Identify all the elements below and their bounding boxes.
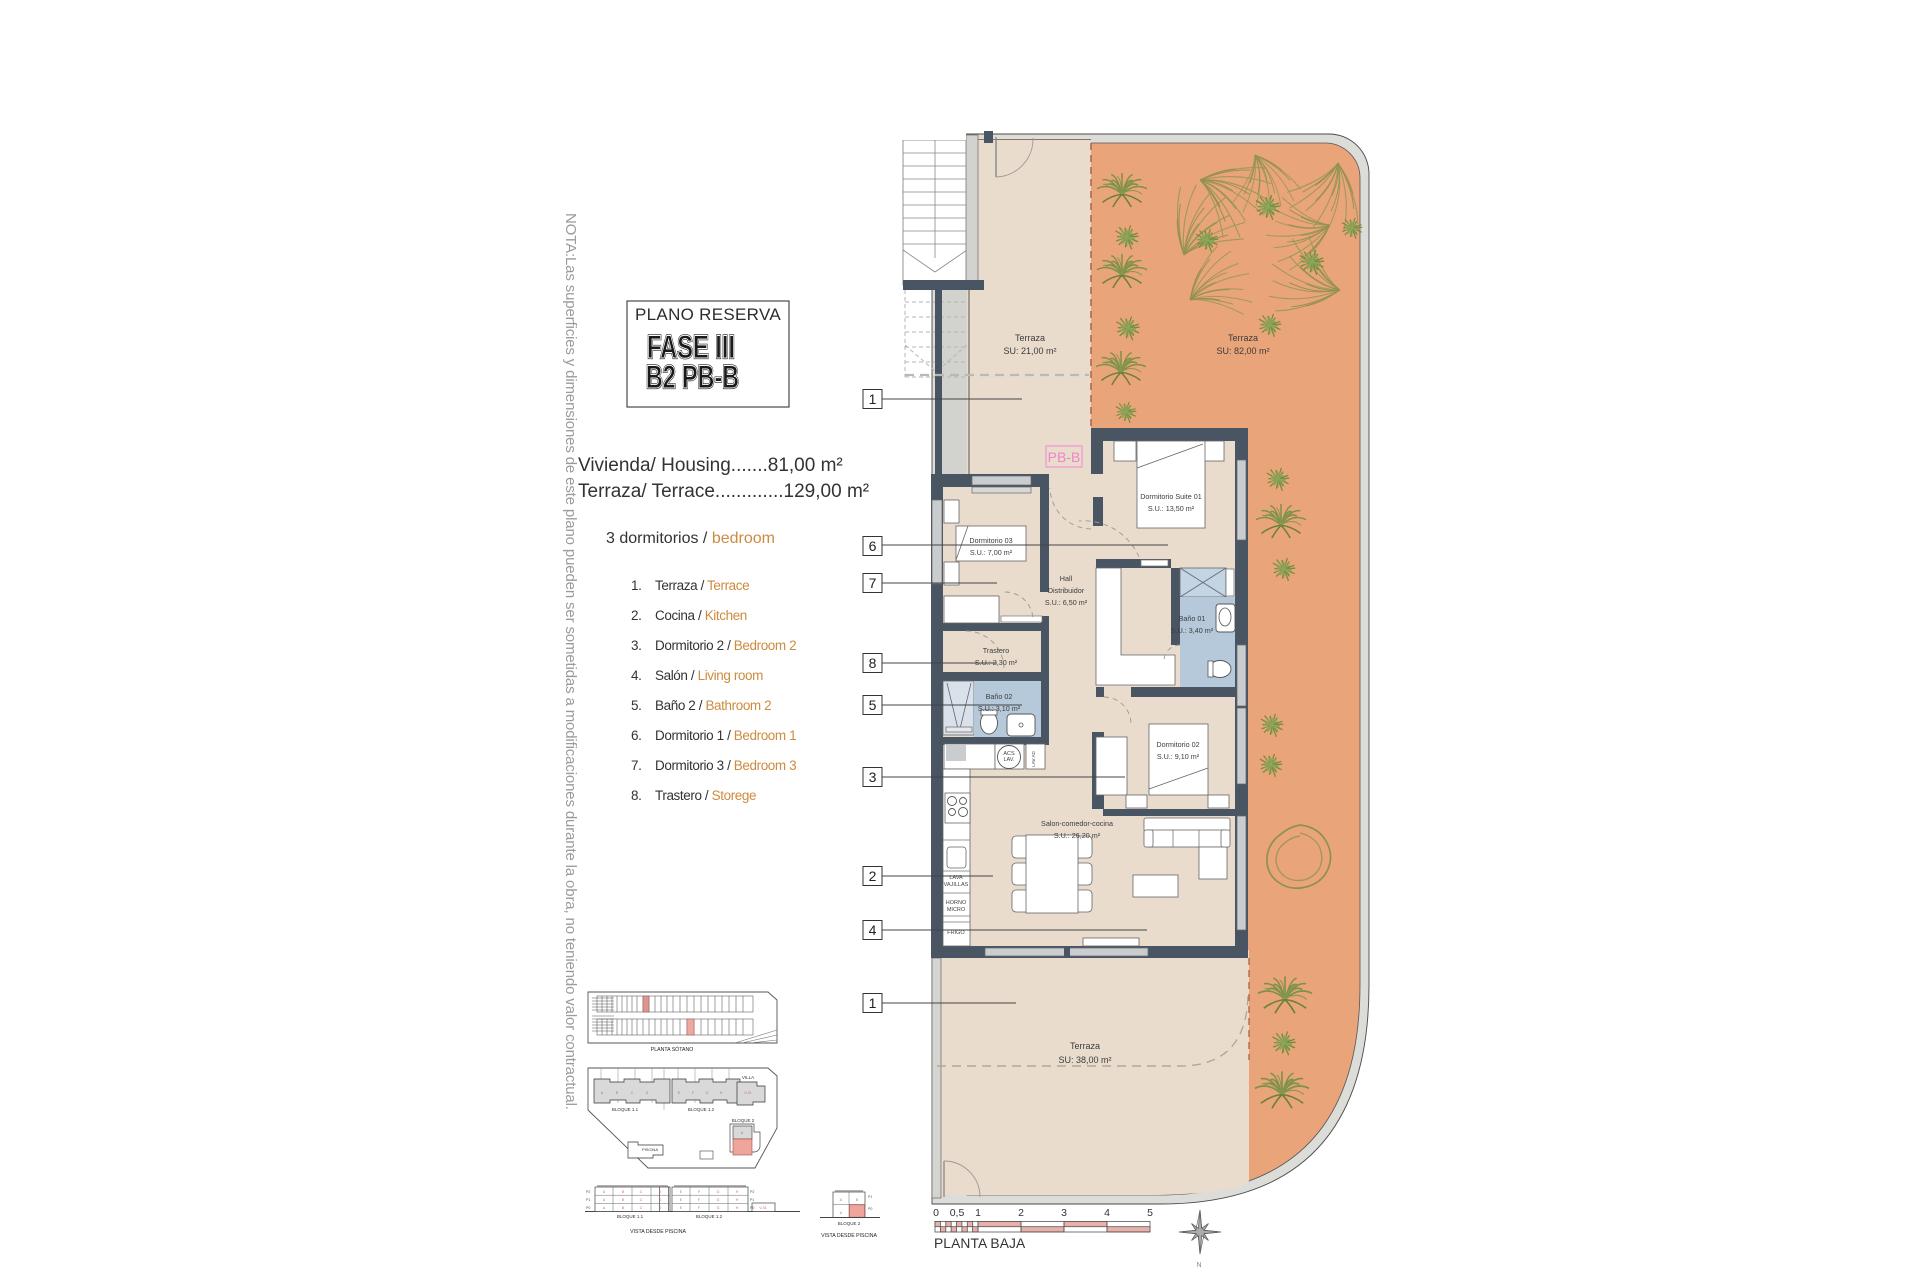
svg-text:PB-B: PB-B: [1048, 449, 1081, 465]
svg-text:0,5: 0,5: [950, 1207, 965, 1219]
svg-text:6.: 6.: [631, 728, 641, 743]
svg-text:C: C: [640, 1198, 643, 1202]
svg-text:VILLA: VILLA: [742, 1075, 754, 1080]
svg-text:S.U.: 7,00 m²: S.U.: 7,00 m²: [970, 548, 1013, 557]
svg-text:1: 1: [869, 995, 877, 1011]
svg-text:HORNO: HORNO: [946, 900, 967, 906]
svg-text:BLOQUE 1.1: BLOQUE 1.1: [612, 1107, 639, 1112]
svg-text:Dormitorio Suite 01: Dormitorio Suite 01: [1140, 492, 1202, 501]
svg-text:LAV.: LAV.: [1003, 757, 1014, 763]
svg-text:G: G: [706, 1091, 709, 1095]
svg-text:Baño 2 / Bathroom 2: Baño 2 / Bathroom 2: [655, 698, 771, 713]
svg-text:D: D: [646, 1091, 649, 1095]
svg-text:Dormitorio 3 / Bedroom 3: Dormitorio 3 / Bedroom 3: [655, 758, 796, 773]
svg-text:5.: 5.: [631, 698, 641, 713]
svg-text:5: 5: [869, 697, 877, 713]
svg-text:SU: 82,00 m²: SU: 82,00 m²: [1216, 346, 1269, 356]
svg-text:3: 3: [869, 769, 877, 785]
svg-text:S.U.: 13,50 m²: S.U.: 13,50 m²: [1148, 504, 1195, 513]
svg-text:1: 1: [869, 391, 877, 407]
svg-text:Cocina / Kitchen: Cocina / Kitchen: [655, 608, 747, 623]
svg-text:2.: 2.: [631, 608, 641, 623]
svg-text:S.U.: 6,50 m²: S.U.: 6,50 m²: [1045, 598, 1088, 607]
svg-text:3: 3: [1061, 1207, 1067, 1219]
svg-text:4: 4: [869, 922, 877, 938]
svg-text:V-01: V-01: [744, 1091, 751, 1095]
svg-text:Vivienda/ Housing.......81,00: Vivienda/ Housing.......81,00 m²: [578, 455, 843, 476]
svg-text:Terraza / Terrace: Terraza / Terrace: [655, 578, 749, 593]
svg-text:BLOQUE 1.2: BLOQUE 1.2: [688, 1107, 715, 1112]
svg-text:Dormitorio 02: Dormitorio 02: [1156, 740, 1199, 749]
svg-text:1: 1: [975, 1207, 981, 1219]
svg-text:P2: P2: [750, 1190, 754, 1194]
svg-text:Trastero / Storege: Trastero / Storege: [655, 788, 756, 803]
svg-text:Dormitorio 1 / Bedroom 1: Dormitorio 1 / Bedroom 1: [655, 728, 796, 743]
svg-text:LAV AD: LAV AD: [1031, 751, 1036, 767]
svg-text:D: D: [659, 1206, 662, 1210]
svg-text:H: H: [736, 1190, 739, 1194]
svg-text:2: 2: [869, 868, 877, 884]
svg-text:8: 8: [869, 655, 877, 671]
svg-text:Distribuidor: Distribuidor: [1048, 586, 1085, 595]
svg-text:3 dormitorios / bedroom: 3 dormitorios / bedroom: [606, 530, 775, 547]
svg-text:S.U.: 9,10 m²: S.U.: 9,10 m²: [1157, 752, 1200, 761]
svg-text:P1: P1: [586, 1198, 590, 1202]
svg-text:VISTA DESDE PISCINA: VISTA DESDE PISCINA: [630, 1229, 686, 1235]
svg-text:Terraza: Terraza: [1070, 1041, 1100, 1051]
svg-text:VISTA DESDE PISCINA: VISTA DESDE PISCINA: [821, 1233, 877, 1239]
svg-text:PLANO RESERVA: PLANO RESERVA: [635, 305, 781, 324]
svg-text:BLOQUE 1.1: BLOQUE 1.1: [617, 1214, 644, 1219]
svg-text:P2: P2: [586, 1190, 590, 1194]
svg-text:0: 0: [933, 1207, 939, 1219]
svg-text:S.U.: 26,20 m²: S.U.: 26,20 m²: [1054, 831, 1101, 840]
svg-text:S.U.: 3,40 m²: S.U.: 3,40 m²: [1171, 626, 1214, 635]
svg-text:7: 7: [869, 575, 877, 591]
svg-text:8.: 8.: [631, 788, 641, 803]
svg-text:P1: P1: [750, 1198, 754, 1202]
svg-text:Salón / Living room: Salón / Living room: [655, 668, 763, 683]
svg-text:BLOQUE 2: BLOQUE 2: [732, 1118, 755, 1123]
svg-text:P0: P0: [868, 1207, 872, 1211]
svg-text:Trastero: Trastero: [983, 646, 1010, 655]
svg-text:C: C: [640, 1190, 643, 1194]
svg-text:5: 5: [1147, 1207, 1153, 1219]
svg-text:Baño 01: Baño 01: [1179, 614, 1206, 623]
svg-text:FRIGO: FRIGO: [947, 930, 965, 936]
svg-text:Hall: Hall: [1060, 574, 1073, 583]
svg-text:Baño 02: Baño 02: [986, 692, 1013, 701]
svg-text:SU: 21,00 m²: SU: 21,00 m²: [1003, 346, 1056, 356]
svg-text:P0: P0: [750, 1206, 754, 1210]
svg-text:D: D: [659, 1198, 662, 1202]
svg-text:B2 PB-B: B2 PB-B: [646, 359, 739, 395]
svg-text:G: G: [717, 1190, 720, 1194]
svg-text:1.: 1.: [631, 578, 641, 593]
svg-text:V-01: V-01: [759, 1206, 766, 1210]
svg-text:VAJILLAS: VAJILLAS: [944, 882, 969, 888]
svg-text:H: H: [736, 1206, 739, 1210]
svg-text:PLANTA BAJA: PLANTA BAJA: [934, 1236, 1026, 1251]
svg-text:Dormitorio 2 / Bedroom 2: Dormitorio 2 / Bedroom 2: [655, 638, 796, 653]
svg-text:Terraza: Terraza: [1228, 333, 1258, 343]
svg-text:Dormitorio 03: Dormitorio 03: [969, 536, 1012, 545]
svg-text:G: G: [717, 1198, 720, 1202]
svg-text:PISCINA: PISCINA: [642, 1147, 658, 1152]
svg-text:Terraza/ Terrace.............1: Terraza/ Terrace.............129,00 m²: [578, 481, 869, 502]
svg-text:2: 2: [1018, 1207, 1024, 1219]
svg-text:P1: P1: [868, 1195, 872, 1199]
svg-text:C: C: [640, 1206, 643, 1210]
svg-text:C: C: [631, 1091, 634, 1095]
svg-text:BLOQUE 2: BLOQUE 2: [838, 1221, 861, 1226]
svg-text:P0: P0: [586, 1206, 590, 1210]
svg-text:Salon-comedor-cocina: Salon-comedor-cocina: [1041, 819, 1113, 828]
svg-text:6: 6: [869, 538, 877, 554]
svg-text:4: 4: [1104, 1207, 1110, 1219]
svg-text:BLOQUE 1.2: BLOQUE 1.2: [696, 1214, 723, 1219]
svg-text:N: N: [1196, 1262, 1201, 1269]
svg-text:PLANTA SÓTANO: PLANTA SÓTANO: [651, 1046, 693, 1053]
svg-text:4.: 4.: [631, 668, 641, 683]
svg-text:SU: 38,00 m²: SU: 38,00 m²: [1058, 1055, 1111, 1065]
svg-text:7.: 7.: [631, 758, 641, 773]
svg-text:D: D: [659, 1190, 662, 1194]
svg-text:H: H: [736, 1198, 739, 1202]
svg-text:H: H: [720, 1091, 723, 1095]
svg-text:G: G: [717, 1206, 720, 1210]
svg-text:NOTA:Las superficies y dimensi: NOTA:Las superficies y dimensiones de es…: [562, 213, 579, 1110]
svg-text:MICRO: MICRO: [947, 907, 966, 913]
svg-text:3.: 3.: [631, 638, 641, 653]
svg-text:Terraza: Terraza: [1015, 333, 1045, 343]
